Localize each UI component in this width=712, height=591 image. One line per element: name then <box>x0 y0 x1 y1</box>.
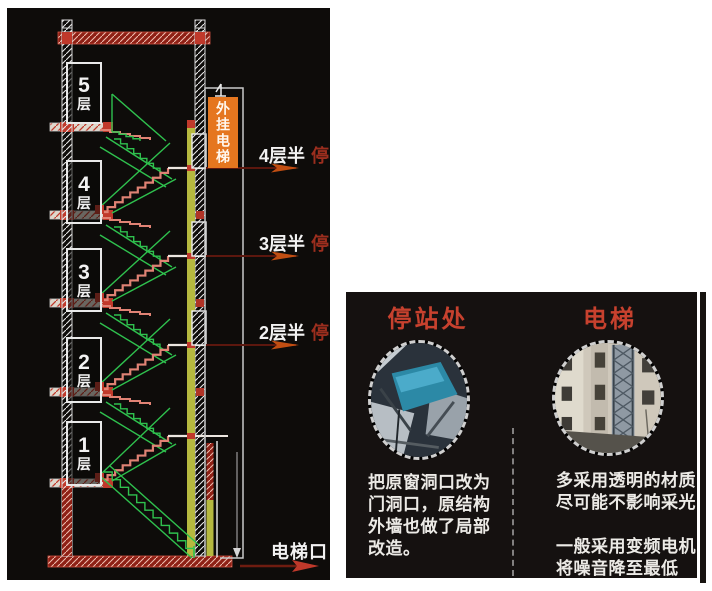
external-elevator-tag: 外挂电梯 <box>208 97 238 168</box>
station-photo <box>368 340 470 460</box>
stop-level-label: 3层半 <box>259 230 305 256</box>
floor-label-5: 5 层 <box>66 62 102 124</box>
floor-suffix: 层 <box>77 374 91 389</box>
floor-number: 4 <box>78 174 90 196</box>
stop-row-2-5: 2层半 停 <box>243 319 329 345</box>
column-title-station: 停站处 <box>358 299 498 334</box>
floor-number: 3 <box>78 262 90 284</box>
column-title-elevator: 电梯 <box>540 299 680 334</box>
floor-label-4: 4 层 <box>66 160 102 224</box>
floor-label-2: 2 层 <box>66 337 102 403</box>
station-photo-image <box>371 343 467 457</box>
stop-mark: 停 <box>311 142 329 168</box>
floor-label-1: 1 层 <box>66 421 102 486</box>
elevator-photo-image <box>555 343 661 453</box>
floor-number: 1 <box>78 435 90 457</box>
station-caption: 把原窗洞口改为 门洞口，原结构 外墙也做了局部 改造。 <box>368 472 520 560</box>
floor-suffix: 层 <box>77 284 91 299</box>
floor-suffix: 层 <box>77 457 91 472</box>
stop-row-4-5: 4层半 停 <box>243 142 329 168</box>
elevator-caption: 多采用透明的材质 尽可能不影响采光 一般采用变频电机 将噪音降至最低 <box>556 470 702 580</box>
stop-level-label: 2层半 <box>259 319 305 345</box>
floor-number: 5 <box>78 75 90 97</box>
floor-suffix: 层 <box>77 196 91 211</box>
stop-level-label: 4层半 <box>259 142 305 168</box>
stop-mark: 停 <box>311 319 329 345</box>
floor-number: 2 <box>78 352 90 374</box>
stop-row-3-5: 3层半 停 <box>243 230 329 256</box>
stop-mark: 停 <box>311 230 329 256</box>
floor-suffix: 层 <box>77 97 91 112</box>
elevator-photo <box>552 340 664 456</box>
elevator-entrance-label: 电梯口 <box>271 538 328 564</box>
infographic-canvas: 5 层 4 层 3 层 2 层 1 层 外挂电梯 4层半 停 3层半 停 2层半… <box>0 0 712 591</box>
floor-label-3: 3 层 <box>66 248 102 312</box>
